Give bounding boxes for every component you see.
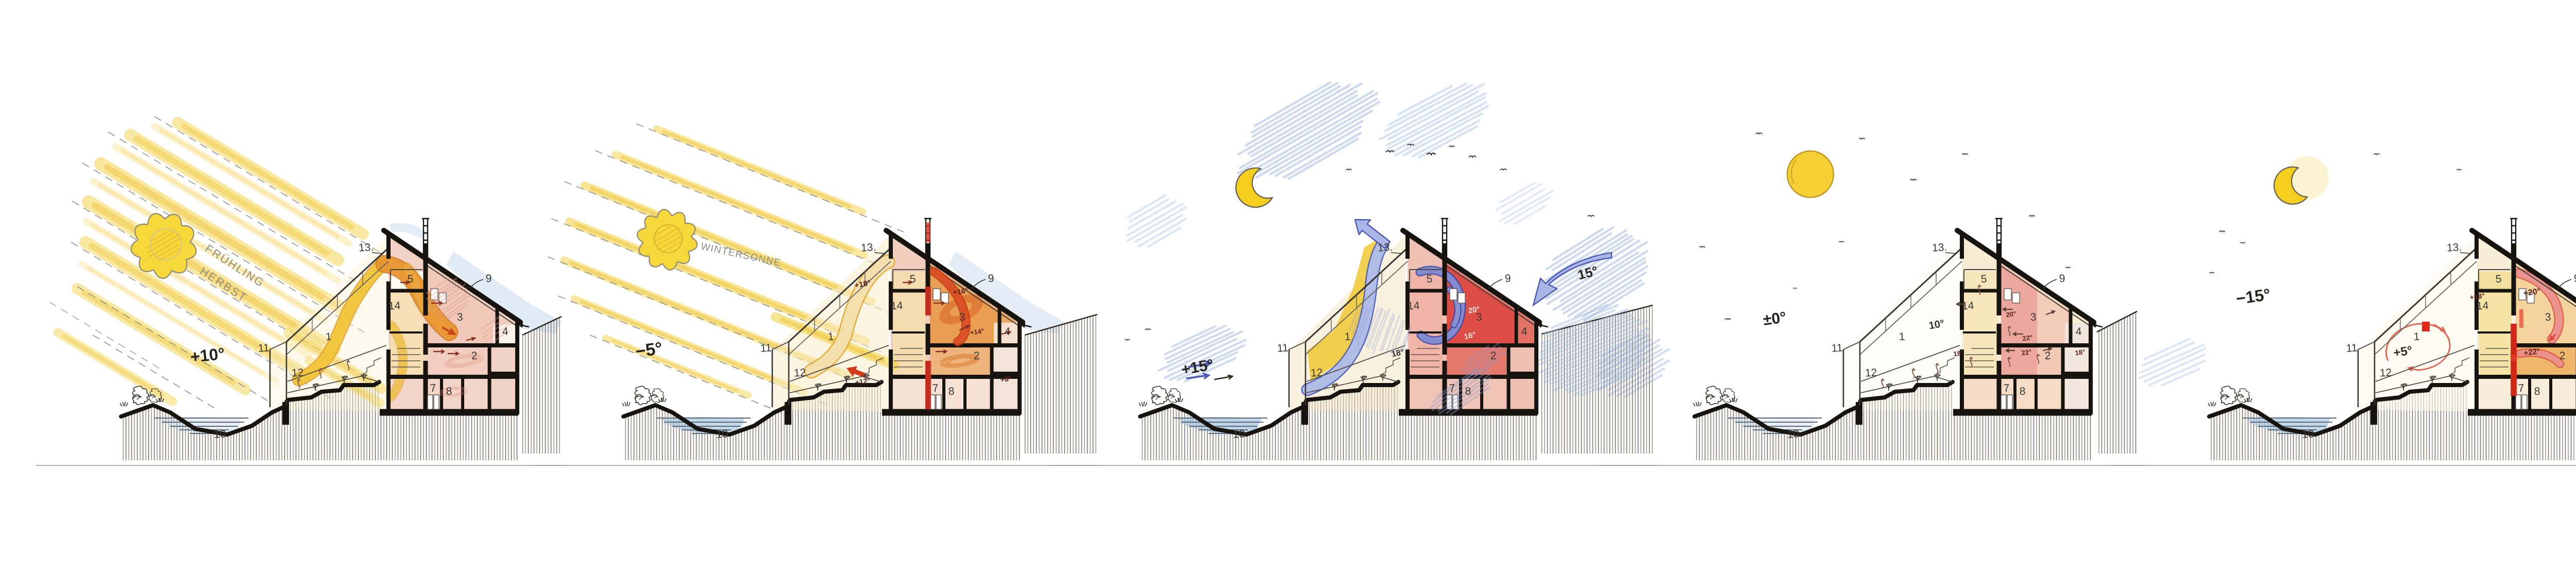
svg-text:9: 9	[2059, 273, 2065, 285]
svg-text:−5°: −5°	[634, 339, 664, 362]
svg-text:4: 4	[502, 326, 509, 338]
svg-text:10: 10	[213, 428, 226, 440]
svg-text:8: 8	[1465, 386, 1471, 398]
svg-text:7: 7	[430, 382, 436, 395]
svg-text:22°: 22°	[2022, 333, 2033, 343]
svg-text:7: 7	[2003, 382, 2010, 395]
svg-text:11: 11	[760, 342, 772, 354]
svg-text:3: 3	[2545, 311, 2551, 324]
svg-text:22°: 22°	[2021, 348, 2032, 357]
svg-text:11: 11	[1831, 342, 1843, 354]
svg-text:13.: 13.	[1931, 241, 1947, 254]
svg-text:+8°: +8°	[1000, 374, 1012, 384]
svg-text:10: 10	[2301, 428, 2314, 440]
svg-text:12: 12	[793, 366, 806, 379]
svg-text:5: 5	[1426, 273, 1433, 286]
svg-text:10: 10	[1787, 428, 1800, 440]
svg-text:18°: 18°	[1953, 349, 1964, 358]
svg-text:12: 12	[291, 366, 304, 379]
svg-text:1: 1	[2413, 331, 2420, 343]
svg-text:10: 10	[1232, 428, 1245, 440]
svg-text:±0°: ±0°	[1762, 309, 1787, 329]
svg-text:3: 3	[1476, 311, 1482, 324]
svg-text:14: 14	[1407, 299, 1420, 312]
svg-text:11: 11	[258, 342, 269, 354]
svg-text:1: 1	[1899, 331, 1905, 343]
svg-text:13.: 13.	[358, 241, 374, 254]
svg-text:5: 5	[909, 273, 916, 286]
svg-text:9: 9	[988, 273, 994, 285]
svg-text:5: 5	[407, 273, 414, 286]
svg-text:13.: 13.	[2446, 241, 2462, 254]
svg-text:1: 1	[1344, 331, 1351, 343]
svg-text:11: 11	[2346, 342, 2358, 354]
svg-text:14: 14	[388, 299, 401, 312]
svg-text:10: 10	[716, 428, 728, 440]
svg-text:8: 8	[2534, 386, 2540, 398]
svg-text:14: 14	[2476, 299, 2489, 312]
svg-text:12: 12	[1865, 366, 1877, 379]
svg-text:3: 3	[2030, 311, 2037, 324]
svg-text:4: 4	[1521, 326, 1528, 338]
svg-text:12: 12	[2379, 366, 2392, 379]
svg-text:18°: 18°	[2075, 348, 2086, 357]
svg-text:+5°: +5°	[2393, 344, 2413, 360]
svg-text:13.: 13.	[860, 241, 876, 254]
svg-text:20°: 20°	[2006, 310, 2017, 319]
svg-text:9: 9	[485, 273, 492, 285]
svg-text:3: 3	[959, 311, 965, 324]
svg-text:8: 8	[2019, 386, 2026, 398]
svg-text:2: 2	[973, 350, 980, 362]
svg-text:5: 5	[2495, 273, 2502, 286]
svg-text:12: 12	[1310, 366, 1323, 379]
svg-text:4: 4	[1004, 326, 1011, 338]
svg-text:2: 2	[1490, 350, 1497, 362]
svg-text:9: 9	[2573, 273, 2576, 285]
svg-text:3: 3	[456, 311, 463, 324]
svg-text:7: 7	[2518, 382, 2524, 395]
svg-text:2: 2	[2559, 350, 2566, 362]
svg-text:2: 2	[471, 350, 478, 362]
svg-text:+10°: +10°	[190, 344, 226, 366]
svg-text:14: 14	[1961, 299, 1974, 312]
svg-text:4: 4	[2075, 326, 2082, 338]
svg-text:14: 14	[890, 299, 903, 312]
svg-text:9: 9	[1504, 273, 1511, 285]
svg-text:13.: 13.	[1377, 241, 1393, 254]
svg-text:7: 7	[1449, 382, 1455, 395]
svg-text:2: 2	[2044, 350, 2051, 362]
svg-text:11: 11	[1277, 342, 1289, 354]
svg-text:1: 1	[325, 331, 332, 343]
svg-text:8: 8	[446, 386, 452, 398]
svg-text:1: 1	[827, 331, 834, 343]
svg-text:5: 5	[1980, 273, 1987, 286]
svg-text:7: 7	[932, 382, 939, 395]
svg-text:8: 8	[948, 386, 955, 398]
